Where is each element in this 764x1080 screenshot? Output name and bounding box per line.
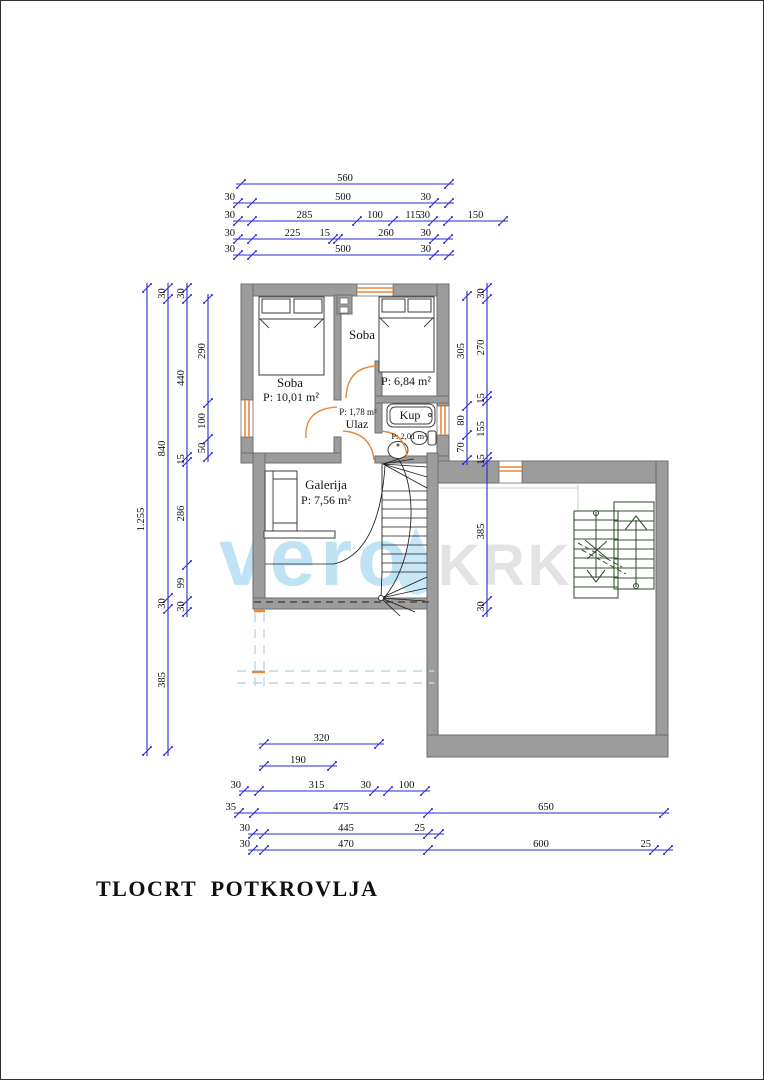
dimension-row: 3028510011530150 bbox=[225, 210, 509, 226]
dimension-label: 15 bbox=[176, 454, 187, 465]
staircase-double-flight-icon bbox=[438, 484, 654, 598]
dimension-row: 30440152869930 bbox=[176, 283, 192, 617]
dimension-label: 30 bbox=[176, 288, 187, 299]
room-name-soba1: Soba bbox=[277, 375, 303, 391]
staircase-winder-icon bbox=[379, 459, 428, 616]
window-left bbox=[241, 400, 253, 437]
dimension-row: 560 bbox=[236, 173, 454, 189]
dimension-label: 30 bbox=[225, 228, 236, 239]
dimension-label: 15 bbox=[320, 228, 331, 239]
dimension-label: 30 bbox=[476, 601, 487, 612]
dimension-label: 286 bbox=[176, 506, 187, 522]
floor-plan-page: vero KRK bbox=[0, 0, 764, 1080]
room-area-soba2: P: 6,84 m² bbox=[381, 374, 431, 389]
dimension-label: 500 bbox=[335, 192, 351, 203]
dimension-label: 290 bbox=[197, 343, 208, 359]
dimension-label: 650 bbox=[538, 802, 554, 813]
window-big-room bbox=[499, 461, 522, 483]
dimension-label: 190 bbox=[290, 755, 306, 766]
dimension-label: 30 bbox=[225, 192, 236, 203]
dimension-row: 1.255 bbox=[136, 283, 152, 756]
dimension-label: 30 bbox=[421, 228, 432, 239]
dimension-label: 385 bbox=[476, 524, 487, 540]
dimension-label: 445 bbox=[338, 823, 354, 834]
dimension-label: 270 bbox=[476, 340, 487, 356]
dimension-label: 305 bbox=[456, 343, 467, 359]
dimension-label: 225 bbox=[285, 228, 301, 239]
dimension-row: 3047060025 bbox=[240, 839, 674, 855]
dimension-label: 30 bbox=[157, 288, 168, 299]
dimension-label: 285 bbox=[297, 210, 313, 221]
room-area-soba1: P: 10,01 m² bbox=[263, 390, 319, 405]
dimension-row: 35475650 bbox=[226, 802, 670, 818]
dimension-label: 475 bbox=[333, 802, 349, 813]
dimension-label: 80 bbox=[456, 415, 467, 426]
dimension-label: 30 bbox=[240, 823, 251, 834]
dimension-label: 100 bbox=[399, 780, 415, 791]
dimension-label: 440 bbox=[176, 370, 187, 386]
dimension-row: 30270151551538530 bbox=[476, 283, 492, 617]
dimension-label: 15 bbox=[476, 393, 487, 404]
dimension-label: 600 bbox=[533, 839, 549, 850]
dimension-label: 25 bbox=[415, 823, 426, 834]
dimension-label: 320 bbox=[314, 733, 330, 744]
dimension-row: 3050030 bbox=[225, 192, 455, 208]
dimension-label: 385 bbox=[157, 672, 168, 688]
dimension-label: 30 bbox=[420, 210, 431, 221]
dimension-row: 3058070 bbox=[456, 291, 472, 465]
dimension-label: 30 bbox=[361, 780, 372, 791]
dimension-label: 15 bbox=[476, 454, 487, 465]
dimension-label: 315 bbox=[309, 780, 325, 791]
dimension-row: 190 bbox=[259, 755, 337, 771]
bed-icon bbox=[259, 297, 324, 375]
window-right bbox=[437, 406, 449, 435]
dimension-label: 25 bbox=[641, 839, 652, 850]
dimension-row: 3084030385 bbox=[157, 283, 173, 756]
door-arc bbox=[343, 431, 374, 460]
dimension-label: 99 bbox=[176, 578, 187, 589]
room-name-galerija: Galerija bbox=[305, 477, 347, 493]
door-arc bbox=[346, 366, 377, 398]
room-name-soba2: Soba bbox=[349, 327, 375, 343]
dimension-label: 470 bbox=[338, 839, 354, 850]
dimension-label: 30 bbox=[240, 839, 251, 850]
dimension-label: 30 bbox=[476, 288, 487, 299]
dimension-row: 29010050 bbox=[197, 294, 213, 462]
dimension-label: 1.255 bbox=[136, 508, 147, 532]
dimension-label: 30 bbox=[421, 244, 432, 255]
room-area-galerija: P: 7,56 m² bbox=[301, 493, 351, 508]
dimension-label: 30 bbox=[225, 244, 236, 255]
dimension-label: 30 bbox=[176, 601, 187, 612]
dimension-label: 100 bbox=[367, 210, 383, 221]
dimension-label: 35 bbox=[226, 802, 237, 813]
dimension-label: 115 bbox=[405, 210, 420, 221]
dimension-row: 302251526030 bbox=[225, 228, 454, 244]
dimension-row: 3050030 bbox=[225, 244, 455, 260]
dimension-label: 30 bbox=[421, 192, 432, 203]
dimension-row: 3031530100 bbox=[231, 780, 431, 796]
dimension-row: 3044525 bbox=[240, 823, 445, 839]
dimension-label: 155 bbox=[476, 421, 487, 437]
dimension-label: 30 bbox=[231, 780, 242, 791]
dimension-label: 260 bbox=[378, 228, 394, 239]
dimension-label: 70 bbox=[456, 442, 467, 453]
room-name-kup: Kup bbox=[400, 408, 421, 423]
room-area-kup: P: 2,01 m² bbox=[391, 431, 426, 441]
floor-plan-drawing: 5603050030302851001153015030225152603030… bbox=[1, 1, 764, 1080]
dimension-label: 100 bbox=[197, 413, 208, 429]
dimension-row: 320 bbox=[259, 733, 384, 749]
window-top bbox=[357, 284, 393, 296]
dimension-label: 50 bbox=[197, 443, 208, 454]
dimension-label: 30 bbox=[157, 598, 168, 609]
dimension-label: 560 bbox=[337, 173, 353, 184]
room-name-ulaz: Ulaz bbox=[346, 417, 369, 432]
projection-dashed-lines bbox=[237, 602, 434, 689]
bed-icon bbox=[379, 297, 434, 372]
room-area-ulaz: P: 1,78 m² bbox=[339, 407, 376, 417]
dimension-label: 840 bbox=[157, 441, 168, 457]
page-title: TLOCRT POTKROVLJA bbox=[96, 876, 379, 902]
dimension-label: 150 bbox=[468, 210, 484, 221]
sink-icon bbox=[388, 442, 408, 459]
dimension-label: 30 bbox=[225, 210, 236, 221]
door-arc bbox=[306, 407, 337, 438]
dimension-label: 500 bbox=[335, 244, 351, 255]
